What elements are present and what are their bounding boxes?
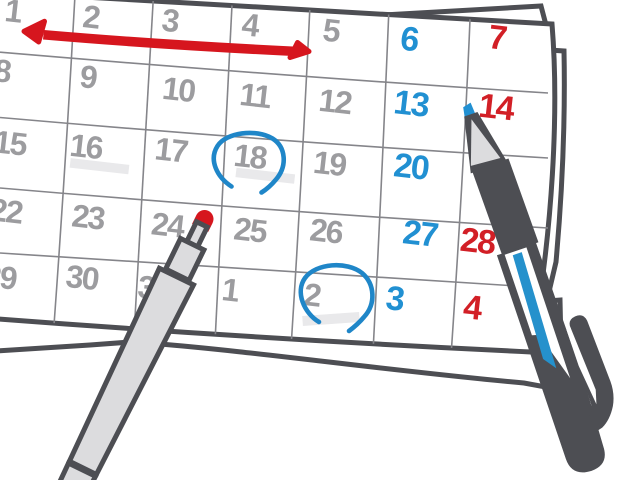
svg-text:18: 18 bbox=[232, 137, 269, 177]
svg-text:19: 19 bbox=[311, 144, 348, 184]
svg-text:20: 20 bbox=[392, 146, 431, 188]
svg-text:23: 23 bbox=[70, 197, 107, 237]
svg-text:28: 28 bbox=[458, 221, 497, 263]
svg-text:16: 16 bbox=[68, 127, 105, 167]
svg-text:11: 11 bbox=[238, 76, 273, 115]
svg-text:12: 12 bbox=[317, 82, 354, 122]
svg-text:17: 17 bbox=[153, 130, 190, 170]
svg-text:25: 25 bbox=[232, 210, 269, 250]
svg-text:27: 27 bbox=[401, 213, 440, 255]
svg-text:10: 10 bbox=[160, 70, 197, 110]
svg-text:13: 13 bbox=[392, 83, 431, 125]
svg-text:26: 26 bbox=[308, 211, 345, 251]
svg-text:30: 30 bbox=[64, 258, 101, 298]
